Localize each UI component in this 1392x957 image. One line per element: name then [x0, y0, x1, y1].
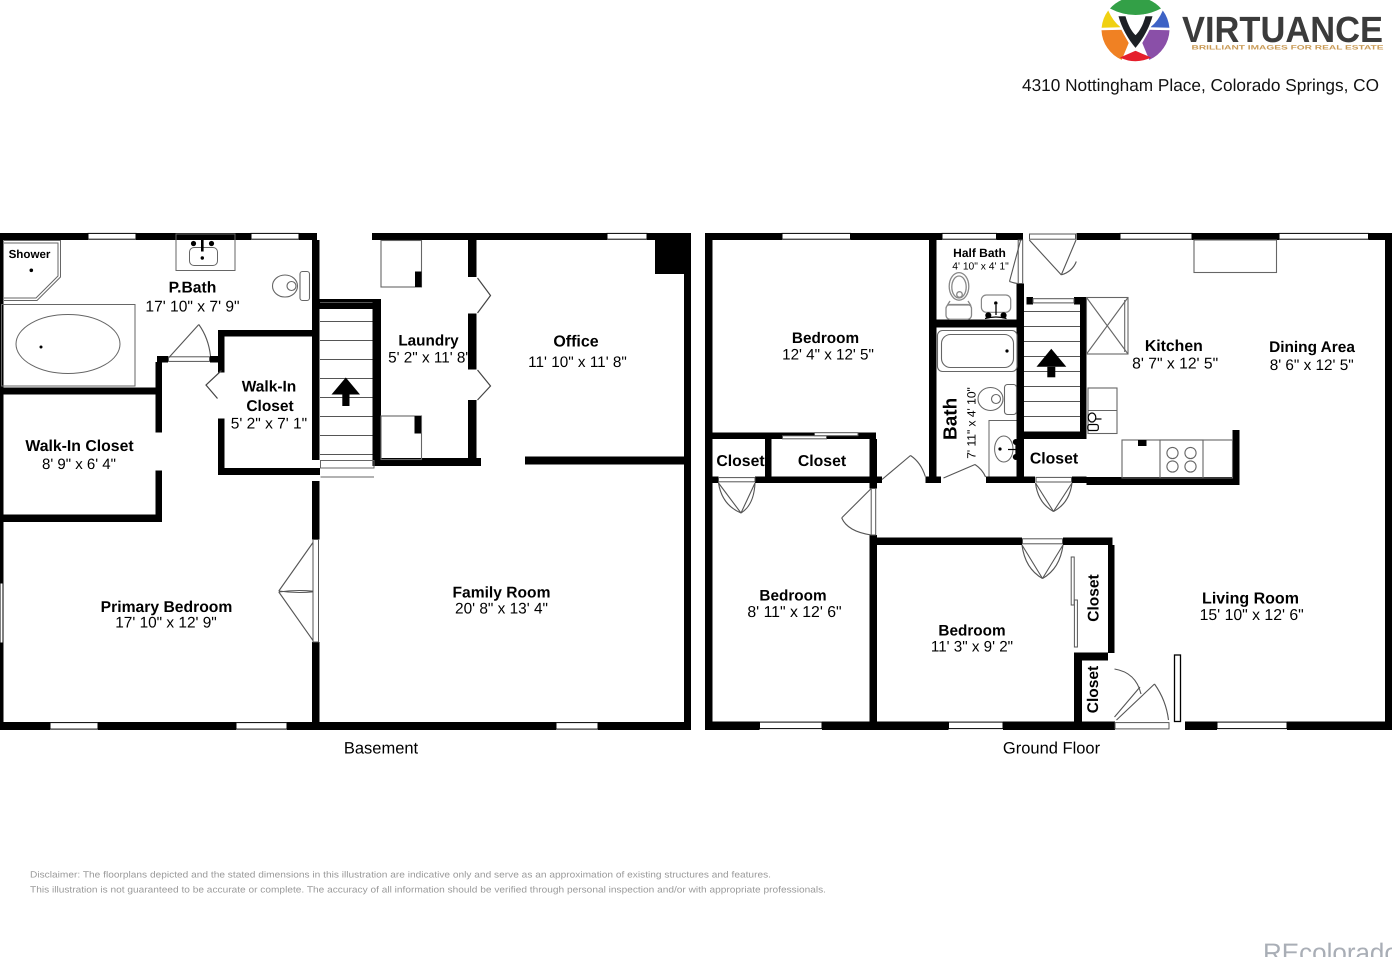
svg-text:5' 2" x 7' 1": 5' 2" x 7' 1" [231, 416, 307, 433]
svg-text:BRILLIANT IMAGES FOR REAL ESTA: BRILLIANT IMAGES FOR REAL ESTATE [1192, 45, 1384, 52]
svg-text:Closet: Closet [246, 398, 293, 415]
svg-text:Shower: Shower [9, 248, 51, 261]
svg-text:Closet: Closet [798, 453, 847, 470]
svg-text:5' 2" x 11' 8": 5' 2" x 11' 8" [388, 350, 471, 367]
svg-text:11' 3" x 9' 2": 11' 3" x 9' 2" [931, 639, 1013, 656]
svg-text:Closet: Closet [1030, 451, 1079, 468]
svg-text:Family Room: Family Room [453, 584, 551, 601]
svg-text:Living Room: Living Room [1202, 590, 1299, 607]
svg-text:REcolorado: REcolorado [1263, 938, 1392, 957]
svg-text:Bath: Bath [941, 398, 962, 440]
svg-text:Bedroom: Bedroom [759, 587, 826, 604]
svg-text:17' 10" x 7' 9": 17' 10" x 7' 9" [145, 299, 239, 316]
svg-text:Kitchen: Kitchen [1145, 338, 1203, 355]
svg-text:Primary Bedroom: Primary Bedroom [101, 599, 233, 616]
svg-text:8' 6" x 12' 5": 8' 6" x 12' 5" [1270, 357, 1354, 374]
svg-text:Closet: Closet [1086, 574, 1103, 621]
svg-text:4310 Nottingham Place, Colorad: 4310 Nottingham Place, Colorado Springs,… [1022, 75, 1379, 95]
svg-text:Basement: Basement [344, 740, 419, 758]
svg-text:Walk-In: Walk-In [242, 378, 297, 395]
svg-text:11' 10" x 11' 8": 11' 10" x 11' 8" [528, 354, 627, 371]
svg-text:Bedroom: Bedroom [938, 622, 1005, 639]
svg-text:8' 11" x 12' 6": 8' 11" x 12' 6" [747, 604, 841, 621]
svg-text:8' 9" x 6' 4": 8' 9" x 6' 4" [42, 456, 116, 473]
svg-text:Bedroom: Bedroom [792, 330, 859, 347]
svg-text:Office: Office [553, 333, 598, 350]
svg-text:8' 7" x 12' 5": 8' 7" x 12' 5" [1132, 356, 1218, 373]
svg-text:Walk-In Closet: Walk-In Closet [25, 438, 134, 455]
svg-text:Closet: Closet [1085, 666, 1102, 713]
svg-text:17' 10" x 12' 9": 17' 10" x 12' 9" [115, 614, 217, 631]
svg-text:Disclaimer: The floorplans dep: Disclaimer: The floorplans depicted and … [30, 870, 771, 880]
svg-text:Ground Floor: Ground Floor [1003, 740, 1101, 758]
svg-text:15' 10" x 12' 6": 15' 10" x 12' 6" [1200, 607, 1304, 624]
svg-text:Closet: Closet [716, 453, 765, 470]
svg-text:7' 11" x 4' 10": 7' 11" x 4' 10" [965, 387, 979, 459]
svg-text:Dining Area: Dining Area [1269, 339, 1355, 356]
svg-text:20' 8" x 13' 4": 20' 8" x 13' 4" [455, 601, 548, 618]
svg-text:P.Bath: P.Bath [169, 280, 217, 297]
svg-text:4' 10" x 4' 1": 4' 10" x 4' 1" [952, 262, 1009, 273]
svg-text:This illustration is not guara: This illustration is not guaranteed to b… [30, 885, 826, 895]
svg-text:Laundry: Laundry [398, 332, 459, 349]
svg-text:12' 4" x 12' 5": 12' 4" x 12' 5" [782, 347, 874, 364]
svg-text:Half Bath: Half Bath [953, 246, 1006, 260]
